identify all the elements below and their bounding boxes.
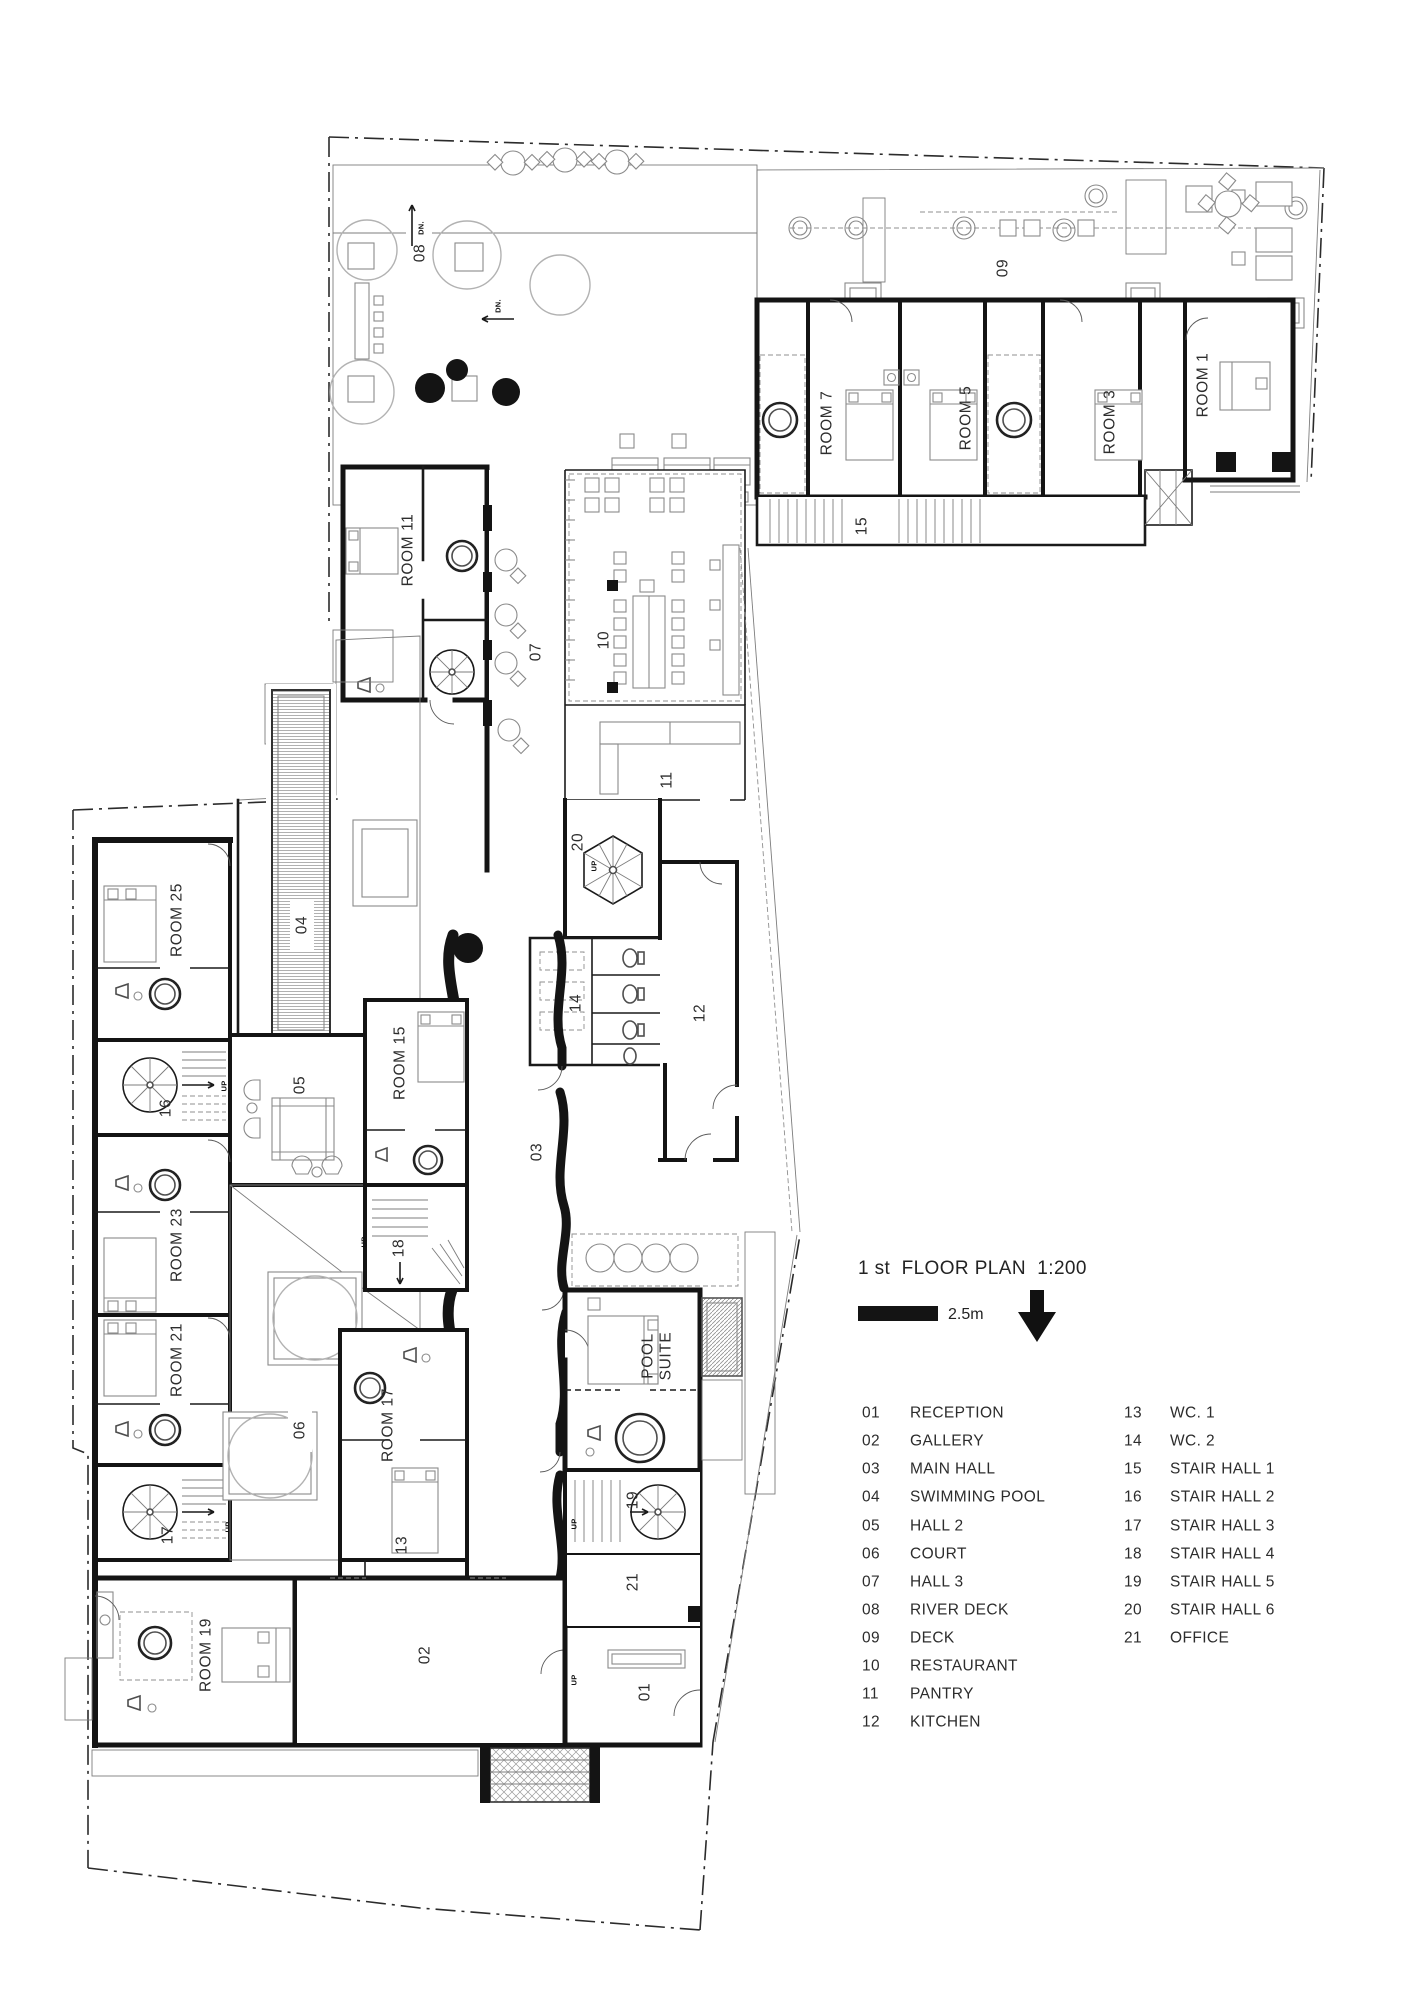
legend-num: 11 <box>862 1686 879 1703</box>
svg-text:DN.: DN. <box>417 221 426 235</box>
legend-num: 03 <box>862 1461 880 1478</box>
label-space-20: 20 <box>570 833 587 851</box>
legend-num: 16 <box>1124 1489 1142 1506</box>
label-room-5: ROOM 5 <box>958 386 975 451</box>
legend-name: WC. 1 <box>1170 1405 1215 1422</box>
label-space-13: 13 <box>394 1536 411 1554</box>
legend-name: GALLERY <box>910 1433 984 1450</box>
label-space-11: 11 <box>659 771 676 788</box>
svg-text:DN.: DN. <box>494 299 503 313</box>
label-room-11: ROOM 11 <box>400 514 417 587</box>
scale-label: 2.5m <box>948 1306 984 1323</box>
river-deck-08: 08 DN. DN. <box>330 148 757 505</box>
label-room-21: ROOM 21 <box>169 1323 186 1397</box>
legend-name: RECEPTION <box>910 1405 1004 1422</box>
legend-num: 21 <box>1124 1630 1142 1647</box>
legend-name: STAIR HALL 1 <box>1170 1461 1275 1478</box>
label-space-09: 09 <box>995 259 1012 277</box>
label-space-18: 18 <box>391 1239 408 1257</box>
label-space-10: 10 <box>596 631 613 649</box>
label-space-19: 19 <box>625 1491 642 1509</box>
bed-symbol <box>346 528 398 574</box>
legend-num: 02 <box>862 1433 880 1450</box>
plan-title: 1 st FLOOR PLAN 1:200 <box>858 1258 1087 1279</box>
label-space-21: 21 <box>625 1573 642 1591</box>
stair-hall-20: UP 20 <box>565 800 660 938</box>
wc-14: 14 <box>530 938 665 1065</box>
up-annotation: UP <box>570 1674 579 1685</box>
label-space-03: 03 <box>529 1143 546 1161</box>
legend-name: SWIMMING POOL <box>910 1489 1045 1506</box>
label-space-14: 14 <box>568 994 585 1012</box>
round-table-symbol <box>1198 173 1259 234</box>
garden-planter-symbol <box>353 820 417 906</box>
kitchen-12: 12 <box>660 862 737 1160</box>
floor-plan-sheet: 08 DN. DN. 09 <box>0 0 1414 2000</box>
label-room-1: ROOM 1 <box>1195 353 1212 418</box>
label-space-06: 06 <box>292 1421 309 1439</box>
up-annotation: UP <box>224 1521 233 1532</box>
legend-num: 19 <box>1124 1574 1142 1591</box>
floor-plan-drawing: 08 DN. DN. 09 <box>0 0 1414 2000</box>
legend-name: PANTRY <box>910 1686 974 1703</box>
legend-name: HALL 3 <box>910 1574 964 1591</box>
label-room-23: ROOM 23 <box>169 1208 186 1282</box>
legend-name: RIVER DECK <box>910 1602 1009 1619</box>
private-pool <box>702 1298 742 1460</box>
legend-num: 01 <box>862 1405 880 1422</box>
legend-num: 08 <box>862 1602 880 1619</box>
restaurant-10: 10 <box>565 470 745 705</box>
title-block: 1 st FLOOR PLAN 1:200 2.5m <box>858 1258 1087 1342</box>
legend-name: HALL 2 <box>910 1518 964 1535</box>
up-annotation: UP <box>590 860 599 871</box>
legend-num: 04 <box>862 1489 880 1506</box>
label-room-19: ROOM 19 <box>198 1618 215 1692</box>
label-space-02: 02 <box>417 1646 434 1664</box>
terrace-stones <box>586 1244 698 1272</box>
bathtub-symbol <box>447 541 477 571</box>
legend-name: KITCHEN <box>910 1714 981 1731</box>
legend-num: 13 <box>1124 1405 1142 1422</box>
up-annotation: UP <box>570 1518 579 1529</box>
spiral-stair-symbol <box>430 650 474 694</box>
stair-hall-19: 19 UP <box>565 1470 700 1555</box>
north-arrow-icon <box>1018 1290 1056 1342</box>
label-space-17: 17 <box>160 1526 177 1544</box>
legend-name: STAIR HALL 6 <box>1170 1602 1275 1619</box>
legend-num: 15 <box>1124 1461 1142 1478</box>
label-room-15: ROOM 15 <box>392 1026 409 1100</box>
legend-num: 20 <box>1124 1602 1142 1619</box>
up-annotation: UP <box>360 1236 369 1247</box>
legend-name: STAIR HALL 4 <box>1170 1546 1275 1563</box>
legend-name: MAIN HALL <box>910 1461 995 1478</box>
legend-name: WC. 2 <box>1170 1433 1215 1450</box>
label-room-7: ROOM 7 <box>819 391 836 456</box>
label-pool-suite-1: POOL <box>640 1333 657 1378</box>
legend-num: 10 <box>862 1658 880 1675</box>
legend: 01 RECEPTION 02 GALLERY 03 MAIN HALL 04 … <box>862 1405 1275 1731</box>
legend-num: 17 <box>1124 1518 1142 1535</box>
label-space-07: 07 <box>528 643 545 661</box>
label-space-01: 01 <box>637 1683 654 1701</box>
label-space-05: 05 <box>292 1076 309 1094</box>
label-room-25: ROOM 25 <box>169 883 186 957</box>
reception-01: 01 UP <box>565 1628 700 1745</box>
legend-name: COURT <box>910 1546 967 1563</box>
legend-num: 09 <box>862 1630 880 1647</box>
legend-name: RESTAURANT <box>910 1658 1018 1675</box>
legend-name: DECK <box>910 1630 955 1647</box>
legend-num: 05 <box>862 1518 880 1535</box>
label-space-12: 12 <box>692 1004 709 1022</box>
label-pool-suite-2: SUITE <box>658 1332 675 1381</box>
legend-num: 18 <box>1124 1546 1142 1563</box>
legend-num: 14 <box>1124 1433 1142 1450</box>
legend-num: 07 <box>862 1574 880 1591</box>
gallery-02: 02 <box>295 1578 565 1745</box>
label-room-17: ROOM 17 <box>380 1388 397 1462</box>
legend-name: STAIR HALL 5 <box>1170 1574 1275 1591</box>
deck-tables <box>487 148 644 175</box>
label-space-15: 15 <box>854 517 871 535</box>
east-site-lines <box>740 548 800 1232</box>
legend-num: 12 <box>862 1714 880 1731</box>
label-space-04: 04 <box>294 916 311 934</box>
pantry-11: 11 <box>565 705 745 800</box>
up-annotation: UP <box>220 1080 229 1091</box>
hall-07: 07 <box>483 470 565 870</box>
legend-name: OFFICE <box>1170 1630 1229 1647</box>
label-space-08: 08 <box>412 244 429 262</box>
entry-steps <box>480 1745 600 1803</box>
label-room-3: ROOM 3 <box>1102 390 1119 455</box>
legend-name: STAIR HALL 2 <box>1170 1489 1275 1506</box>
guest-rooms-north: ROOM 7 ROOM 5 ROOM 3 ROOM 1 <box>757 300 1300 497</box>
legend-num: 06 <box>862 1546 880 1563</box>
legend-name: STAIR HALL 3 <box>1170 1518 1275 1535</box>
label-space-16: 16 <box>158 1099 175 1117</box>
scale-bar: 2.5m <box>858 1306 984 1323</box>
